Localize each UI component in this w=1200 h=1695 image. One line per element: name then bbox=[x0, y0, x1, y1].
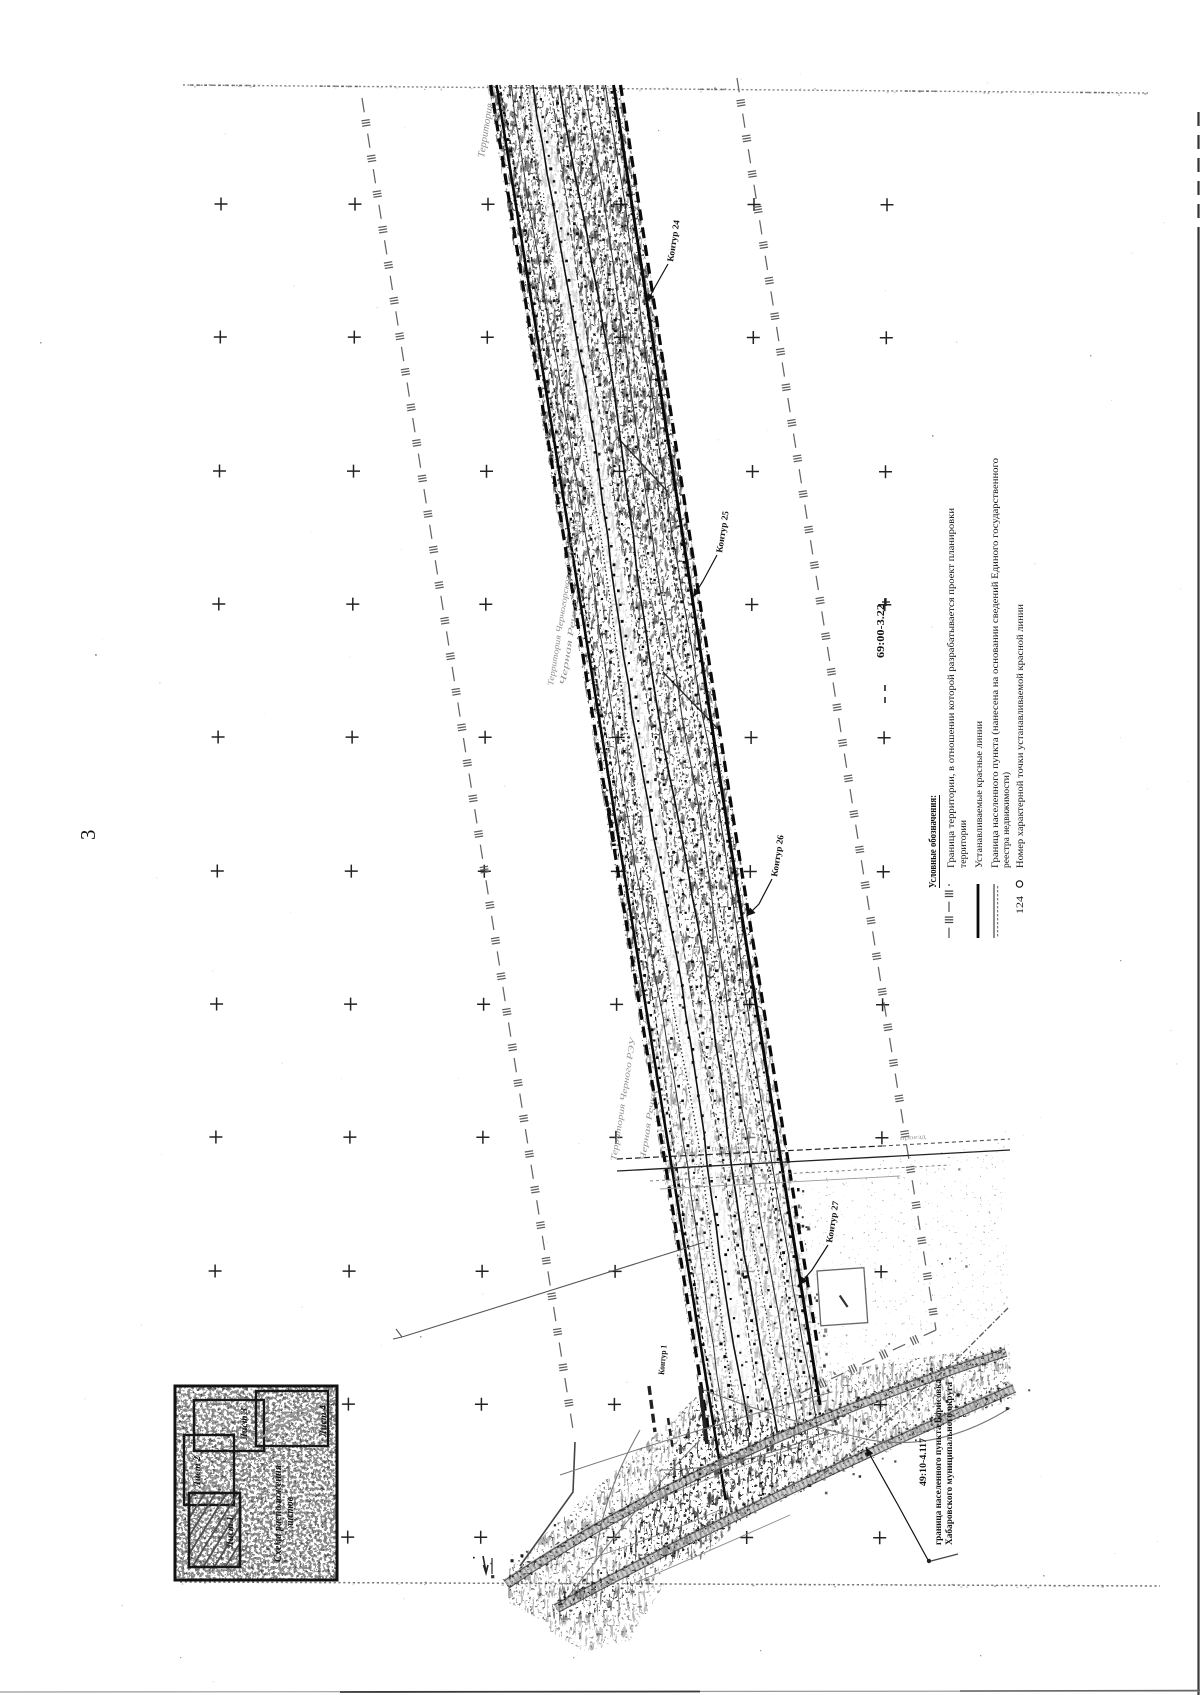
svg-text:Условные обозначения:: Условные обозначения: bbox=[928, 795, 939, 888]
svg-text:Лист 2: Лист 2 bbox=[193, 1456, 203, 1489]
svg-text:Лист 4: Лист 4 bbox=[319, 1405, 329, 1438]
svg-text:граница населенного пункта Бор: граница населенного пункта Борисовка bbox=[933, 1378, 943, 1545]
svg-text:территории: территории bbox=[959, 820, 969, 868]
svg-text:листов: листов bbox=[285, 1496, 296, 1528]
svg-text:Схема расположения: Схема расположения bbox=[273, 1465, 284, 1562]
svg-text:Устанавливаемые красные линии: Устанавливаемые красные линии bbox=[975, 721, 985, 868]
svg-text:124: 124 bbox=[1015, 895, 1025, 914]
svg-text:Лист 1: Лист 1 bbox=[226, 1516, 236, 1549]
svg-text:3: 3 bbox=[76, 830, 100, 841]
svg-text:49:10-4.117: 49:10-4.117 bbox=[918, 1437, 928, 1486]
svg-text:Номер характерной точки устана: Номер характерной точки устанавливаемой … bbox=[1015, 604, 1026, 868]
svg-text:Хабаровского муниципального ок: Хабаровского муниципального округа bbox=[944, 1381, 954, 1545]
svg-text:Граница территории, в отношени: Граница территории, в отношении которой … bbox=[946, 508, 957, 868]
svg-text:69:00-3.22: 69:00-3.22 bbox=[876, 604, 887, 658]
svg-text:реестра недвижимости): реестра недвижимости) bbox=[1001, 772, 1012, 868]
svg-text:Лист 3: Лист 3 bbox=[240, 1408, 250, 1441]
svg-text:Граница населенного пункта (на: Граница населенного пункта (нанесена на … bbox=[990, 458, 1001, 868]
